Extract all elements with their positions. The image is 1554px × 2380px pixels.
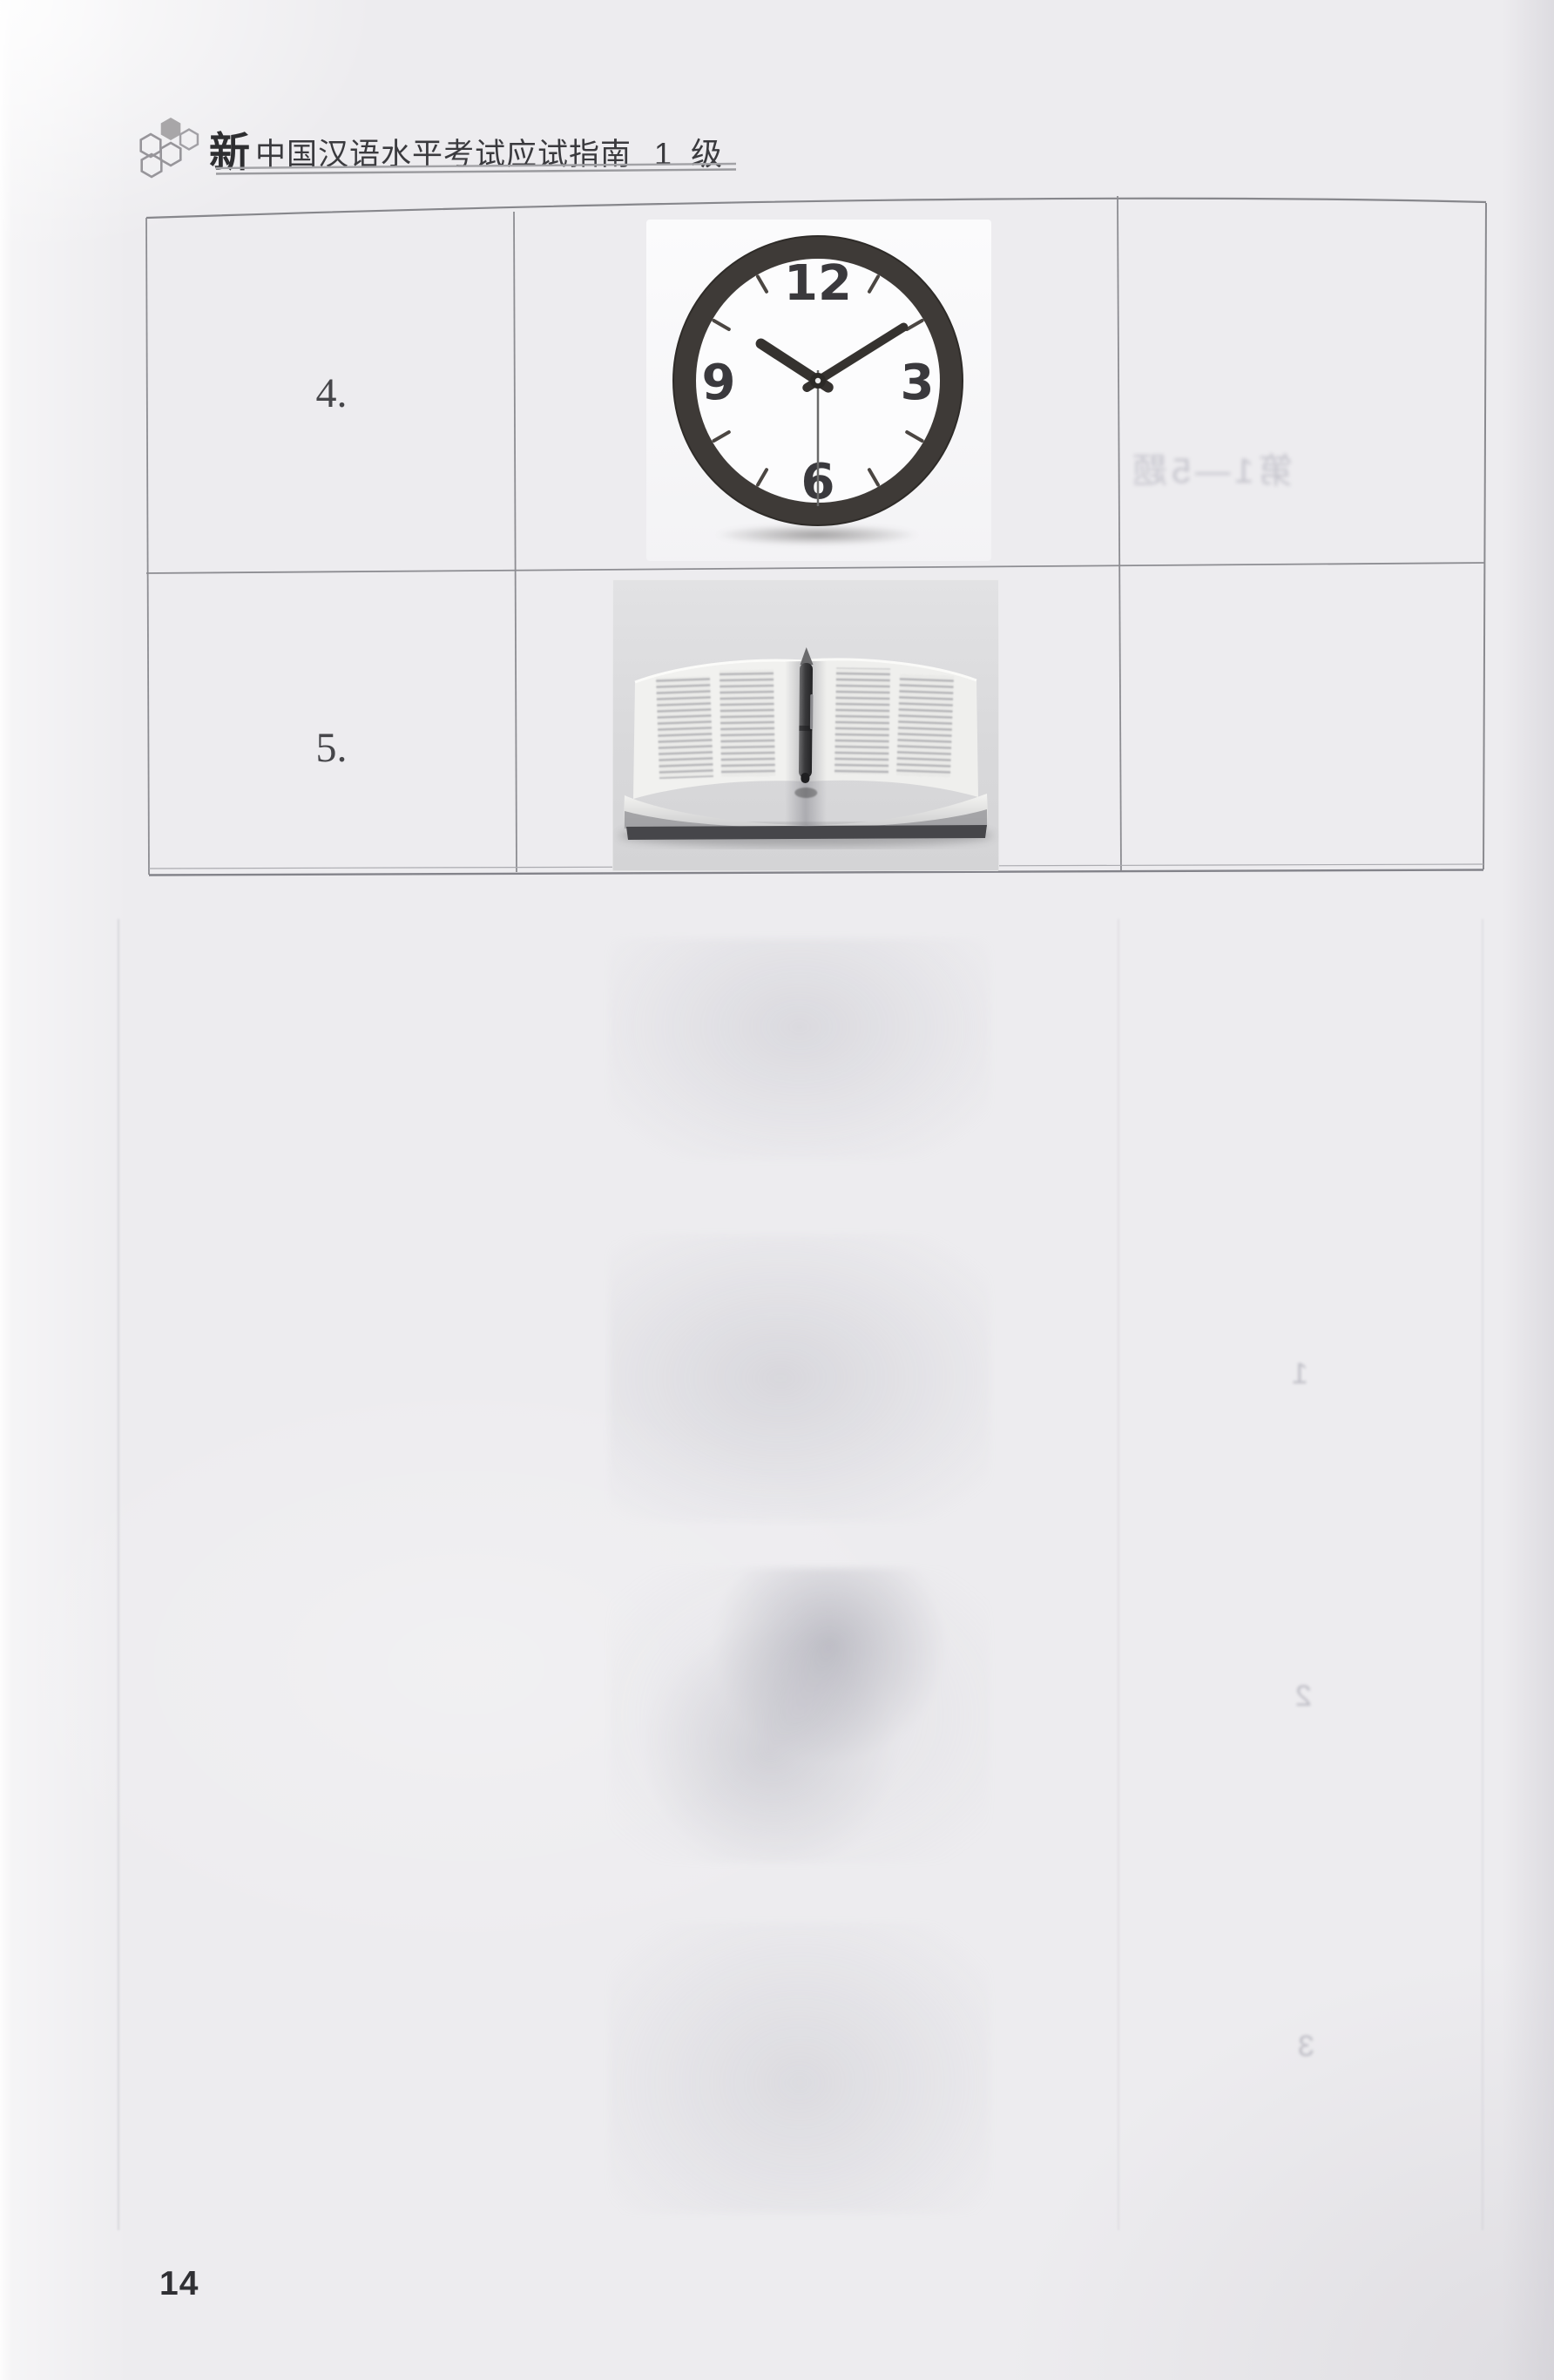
pen-tip	[801, 647, 814, 665]
table-cell-row5-image	[515, 568, 1119, 871]
table-cell-row5-label: 5.	[148, 568, 515, 871]
question-number-4: 4.	[316, 369, 348, 417]
table-cell-row4-answer: 第1—5题	[1119, 218, 1484, 568]
book-cover-base	[626, 825, 987, 840]
clock-numeral-9: 9	[702, 355, 736, 411]
header-underline-bottom	[216, 170, 736, 174]
page-number: 14	[159, 2265, 199, 2303]
clock-numeral-3: 3	[901, 355, 935, 411]
table-cell-row4-label: 4.	[148, 218, 515, 568]
scanned-book-page: 1 2 3 新中国汉语水平考试应试指南1 级	[0, 0, 1554, 2380]
clock-center-dot	[815, 378, 821, 383]
pen-clip	[810, 694, 814, 729]
clock-image: 12 3 6 9	[644, 206, 992, 555]
clock-numeral-12: 12	[784, 255, 852, 312]
header-underline-top	[216, 164, 736, 168]
question-number-5: 5.	[316, 724, 348, 772]
table-cell-row5-answer	[1119, 568, 1484, 871]
book-image	[612, 579, 999, 871]
open-book-illustration	[612, 579, 999, 871]
ghost-mirrored-text: 第1—5题	[1128, 443, 1294, 493]
pen-end-cap	[801, 773, 809, 783]
table-cell-row4-image: 12 3 6 9	[515, 218, 1119, 568]
